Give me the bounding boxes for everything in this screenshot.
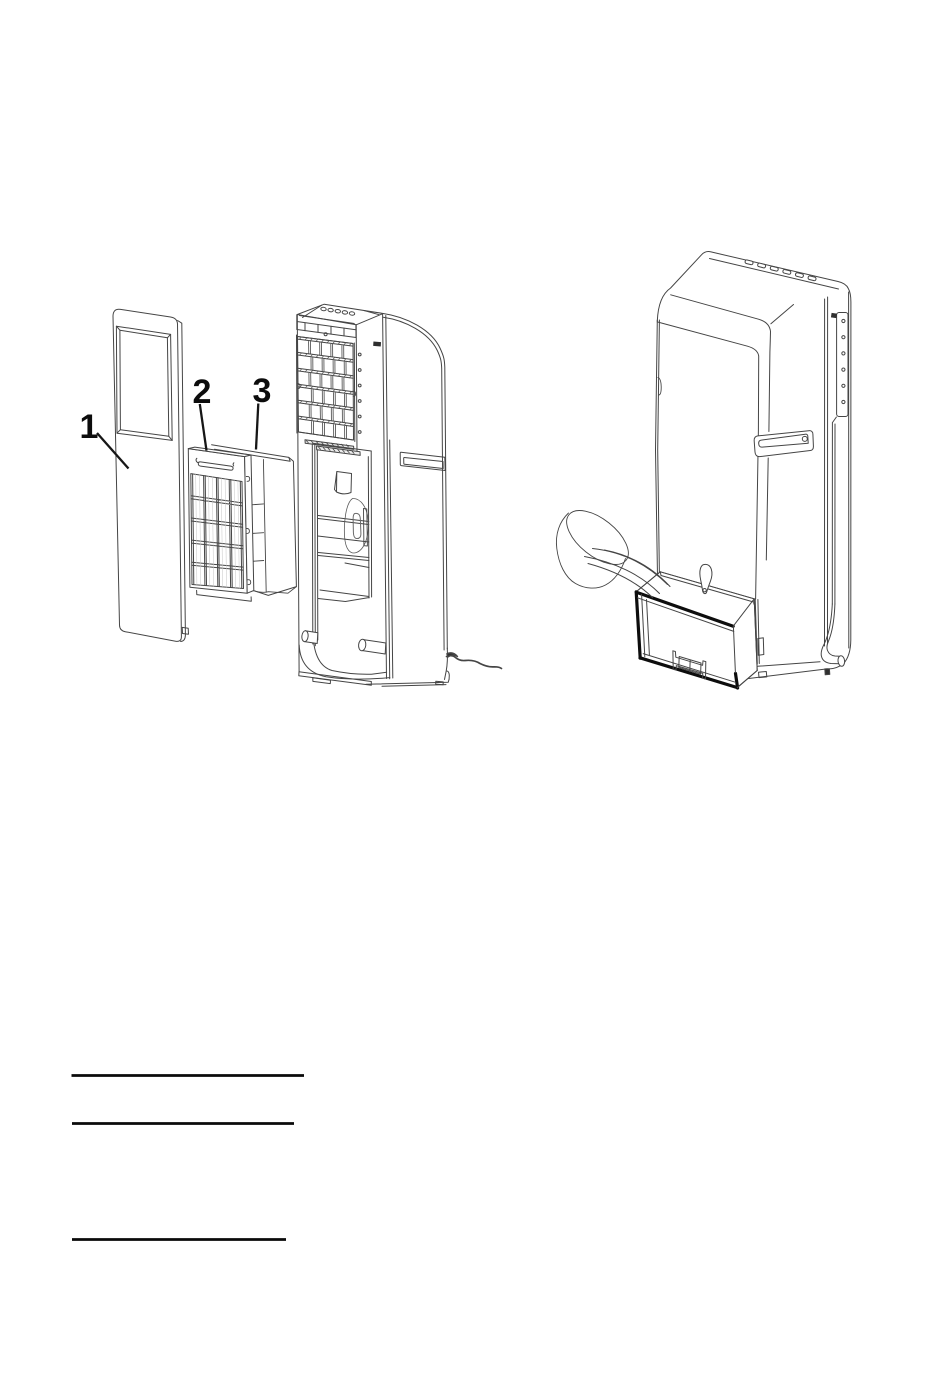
svg-text:2: 2	[193, 373, 212, 411]
svg-text:1: 1	[80, 408, 99, 446]
svg-text:3: 3	[253, 372, 272, 410]
